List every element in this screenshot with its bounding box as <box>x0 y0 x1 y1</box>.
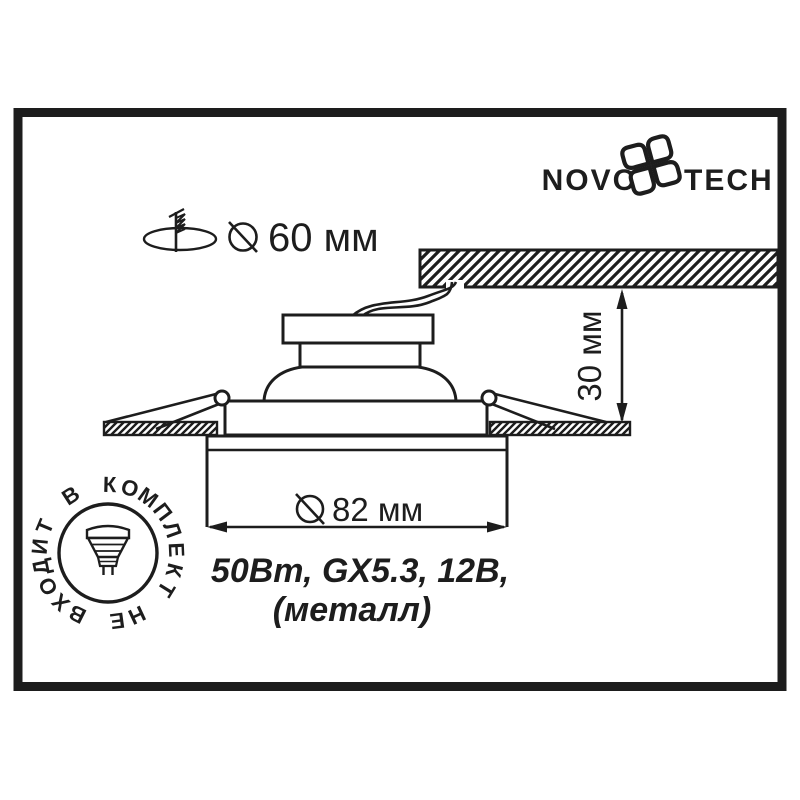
arrowhead-down <box>617 403 628 423</box>
product-diagram: NOVO TECH 60 мм <box>0 0 800 800</box>
cutout-diameter-label: 60 мм <box>268 216 379 260</box>
stamp-char: Д <box>27 556 55 577</box>
outer-diameter-label: 82 мм <box>332 491 423 528</box>
arrowhead-right <box>487 522 507 533</box>
cutout-note: 60 мм <box>144 209 379 260</box>
product-diagram-page: NOVO TECH 60 мм <box>0 0 800 800</box>
housing-neck <box>300 343 420 367</box>
recess-depth-label: 30 мм <box>571 310 608 401</box>
not-included-stamp: НЕВХОДИТВКОМПЛЕКТ <box>27 472 190 634</box>
arrowhead-left <box>207 522 227 533</box>
dimension-recess-depth: 30 мм <box>571 289 628 423</box>
stamp-char: Н <box>124 600 149 629</box>
stamp-char: Е <box>108 607 126 634</box>
housing-can <box>225 401 487 435</box>
stamp-char: И <box>27 538 53 556</box>
housing-dome <box>264 367 456 401</box>
logo-word-novo: NOVO <box>542 164 638 197</box>
diameter-icon <box>296 494 324 524</box>
screw-icon <box>169 209 185 252</box>
stamp-char: К <box>103 472 118 497</box>
diameter-icon <box>229 222 257 252</box>
stamp-char: Е <box>164 542 190 558</box>
ceiling-slab <box>420 250 778 287</box>
ceiling-cut-right <box>490 422 630 435</box>
stamp-char: Т <box>31 515 59 538</box>
stamp-char: В <box>57 481 84 511</box>
novotech-logo: NOVO TECH <box>542 134 774 197</box>
dimension-outer-diameter: 82 мм <box>207 491 507 533</box>
spec-line2: (металл) <box>273 591 432 629</box>
lamp-housing <box>225 315 487 435</box>
logo-word-tech: TECH <box>684 164 774 197</box>
arrowhead-up <box>617 289 628 309</box>
stamp-char: Т <box>152 577 181 602</box>
terminal-block <box>283 315 433 343</box>
spec-line1: 50Вт, GX5.3, 12В, <box>211 552 509 590</box>
stamp-char: К <box>160 561 188 581</box>
mr16-lamp-icon <box>87 526 129 575</box>
